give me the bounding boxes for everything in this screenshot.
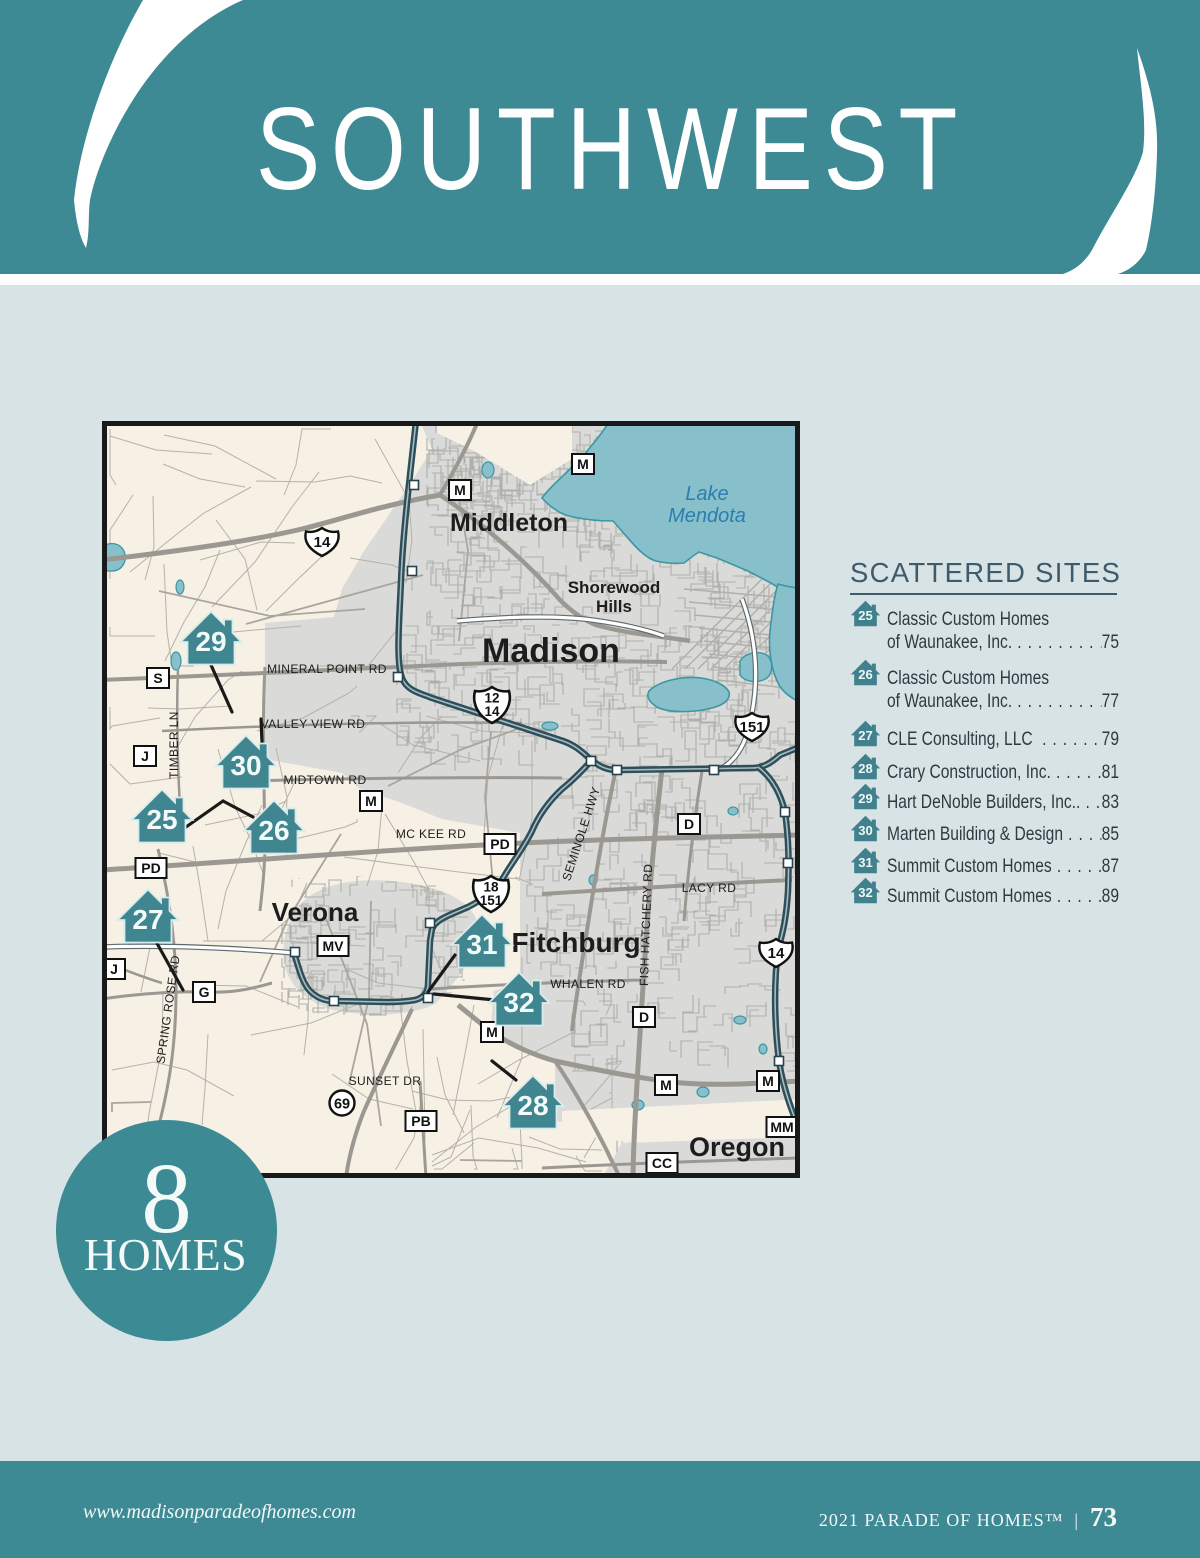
svg-text:Verona: Verona (272, 897, 359, 927)
svg-text:28: 28 (517, 1090, 548, 1121)
svg-text:MV: MV (323, 938, 345, 954)
svg-text:MIDTOWN RD: MIDTOWN RD (283, 773, 366, 787)
svg-text:Lake: Lake (685, 483, 728, 505)
svg-text:30: 30 (858, 823, 872, 838)
svg-text:14: 14 (768, 945, 785, 962)
svg-text:S: S (153, 670, 162, 686)
svg-text:14: 14 (314, 534, 331, 551)
svg-text:VALLEY VIEW RD: VALLEY VIEW RD (261, 717, 366, 731)
svg-text:Fitchburg: Fitchburg (511, 927, 640, 958)
svg-text:J: J (110, 961, 118, 977)
svg-text:M: M (660, 1077, 672, 1093)
svg-text:151: 151 (739, 719, 764, 736)
svg-text:27: 27 (132, 904, 163, 935)
svg-text:Madison: Madison (482, 632, 620, 670)
svg-text:LACY RD: LACY RD (682, 881, 737, 895)
svg-text:14: 14 (484, 704, 500, 719)
svg-text:151: 151 (480, 893, 503, 908)
svg-text:29: 29 (195, 626, 226, 657)
svg-text:26: 26 (858, 667, 872, 682)
svg-text:D: D (639, 1009, 649, 1025)
svg-text:Hills: Hills (596, 597, 632, 616)
svg-text:D: D (684, 816, 694, 832)
svg-text:32: 32 (858, 885, 872, 900)
svg-text:32: 32 (503, 987, 534, 1018)
svg-text:27: 27 (858, 728, 872, 743)
svg-text:MINERAL POINT RD: MINERAL POINT RD (267, 662, 387, 676)
svg-text:CC: CC (652, 1155, 672, 1171)
svg-text:M: M (454, 482, 466, 498)
svg-text:PD: PD (490, 836, 509, 852)
svg-text:M: M (762, 1073, 774, 1089)
svg-text:M: M (486, 1024, 498, 1040)
svg-text:PD: PD (141, 860, 160, 876)
svg-text:28: 28 (858, 761, 872, 776)
svg-text:Middleton: Middleton (450, 509, 568, 537)
svg-text:25: 25 (146, 804, 177, 835)
svg-text:26: 26 (258, 815, 289, 846)
svg-text:J: J (141, 748, 149, 764)
svg-text:31: 31 (858, 855, 872, 870)
svg-text:M: M (365, 793, 377, 809)
svg-text:MC KEE RD: MC KEE RD (396, 827, 466, 841)
svg-text:Mendota: Mendota (668, 505, 746, 527)
svg-text:SUNSET DR: SUNSET DR (349, 1074, 422, 1088)
svg-text:25: 25 (858, 608, 872, 623)
svg-text:MM: MM (770, 1119, 793, 1135)
svg-text:TIMBER LN: TIMBER LN (167, 711, 181, 779)
svg-text:29: 29 (858, 791, 872, 806)
svg-text:69: 69 (334, 1097, 350, 1113)
svg-text:WHALEN RD: WHALEN RD (550, 977, 626, 991)
svg-text:PB: PB (411, 1113, 430, 1129)
svg-text:31: 31 (466, 929, 497, 960)
svg-text:M: M (577, 456, 589, 472)
svg-text:Shorewood: Shorewood (568, 578, 661, 597)
svg-text:G: G (199, 984, 210, 1000)
svg-text:30: 30 (230, 750, 261, 781)
